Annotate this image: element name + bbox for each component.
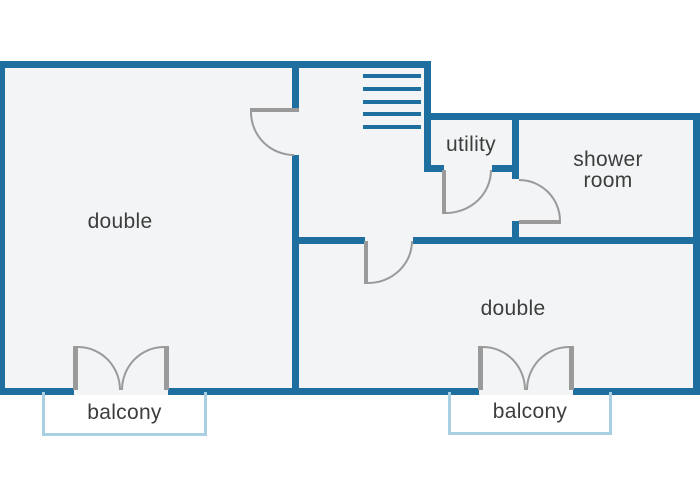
stair-step bbox=[363, 74, 421, 78]
balcony-right: balcony bbox=[448, 392, 612, 435]
wall-left bbox=[0, 61, 5, 395]
balcony-left: balcony bbox=[42, 392, 207, 436]
wall-hall-bottom-left bbox=[292, 237, 365, 244]
stair-step bbox=[363, 87, 421, 91]
wall-stairs-right bbox=[424, 61, 431, 172]
wall-central-lower bbox=[292, 155, 299, 395]
balcony-right-label: balcony bbox=[493, 400, 567, 424]
stair-step bbox=[363, 100, 421, 104]
room-label-utility: utility bbox=[446, 133, 496, 157]
balcony-left-label: balcony bbox=[87, 401, 161, 425]
wall-top bbox=[0, 61, 431, 68]
wall-utility-bottom-left bbox=[424, 165, 444, 172]
floor-plan: balcony balcony double utility shower ro… bbox=[0, 0, 700, 486]
stair-step bbox=[363, 125, 421, 129]
room-label-shower-room: shower room bbox=[558, 149, 658, 191]
stair-step bbox=[363, 112, 421, 116]
wall-top-right bbox=[424, 113, 700, 120]
room-label-double-left: double bbox=[88, 210, 153, 234]
door-leaf bbox=[569, 346, 574, 390]
wall-right bbox=[693, 113, 700, 395]
wall-utility-shower-divider-upper bbox=[512, 113, 519, 179]
wall-central-upper bbox=[292, 61, 299, 108]
door-leaf bbox=[164, 346, 169, 390]
wall-bottom-segment-2 bbox=[168, 388, 479, 395]
room-label-double-right: double bbox=[481, 297, 546, 321]
wall-hall-bottom-right bbox=[413, 237, 700, 244]
